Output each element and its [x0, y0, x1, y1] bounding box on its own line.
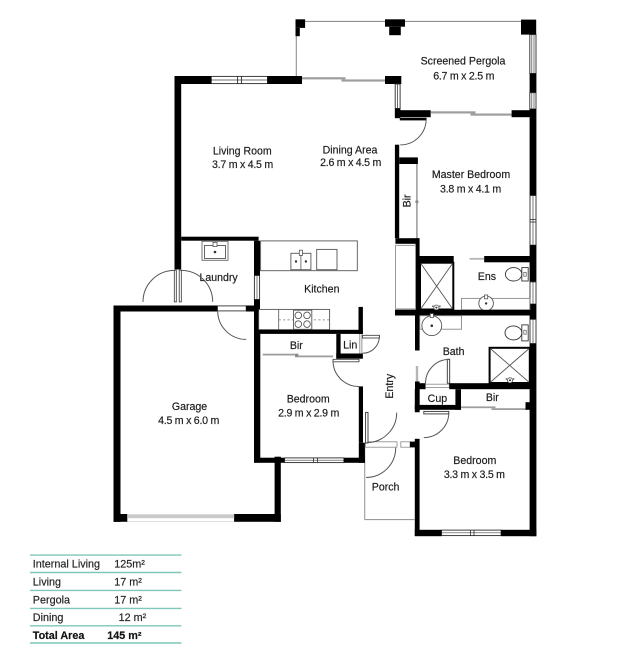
svg-text:3.3 m x 3.5 m: 3.3 m x 3.5 m [444, 469, 505, 481]
svg-text:12 m²: 12 m² [119, 612, 147, 624]
svg-text:Bedroom: Bedroom [453, 455, 496, 467]
svg-text:Lin: Lin [343, 340, 357, 352]
svg-text:Total Area: Total Area [33, 630, 86, 642]
svg-text:Porch: Porch [372, 481, 400, 493]
svg-text:17 m²: 17 m² [114, 594, 142, 606]
svg-text:Pergola: Pergola [33, 594, 70, 606]
svg-text:Dining: Dining [33, 612, 64, 624]
svg-text:Bath: Bath [443, 346, 465, 358]
svg-text:Kitchen: Kitchen [304, 283, 339, 295]
svg-text:Entry: Entry [384, 373, 396, 398]
svg-text:4.5 m x 6.0 m: 4.5 m x 6.0 m [158, 415, 219, 427]
svg-text:Garage: Garage [172, 401, 207, 413]
svg-text:Cup: Cup [428, 393, 448, 405]
svg-text:Bedroom: Bedroom [287, 394, 330, 406]
svg-text:Living Room: Living Room [213, 146, 272, 158]
svg-text:Bir: Bir [290, 340, 303, 352]
svg-text:125m²: 125m² [114, 559, 145, 571]
svg-text:Master Bedroom: Master Bedroom [432, 169, 510, 181]
svg-text:Internal Living: Internal Living [33, 559, 100, 571]
svg-text:3.7 m x 4.5 m: 3.7 m x 4.5 m [212, 159, 273, 171]
svg-text:Living: Living [33, 576, 61, 588]
svg-text:145 m²: 145 m² [107, 630, 142, 642]
svg-text:3.8 m x 4.1 m: 3.8 m x 4.1 m [440, 183, 501, 195]
svg-text:Bir: Bir [401, 194, 413, 207]
svg-text:2.6 m x 4.5 m: 2.6 m x 4.5 m [320, 157, 381, 169]
svg-text:2.9 m x 2.9 m: 2.9 m x 2.9 m [278, 407, 339, 419]
svg-text:Ens: Ens [478, 271, 496, 283]
svg-text:Bir: Bir [486, 392, 499, 404]
svg-text:Dining Area: Dining Area [323, 144, 378, 156]
svg-text:Screened Pergola: Screened Pergola [421, 56, 506, 68]
svg-text:6.7 m x 2.5 m: 6.7 m x 2.5 m [433, 71, 494, 83]
svg-text:17 m²: 17 m² [114, 576, 142, 588]
